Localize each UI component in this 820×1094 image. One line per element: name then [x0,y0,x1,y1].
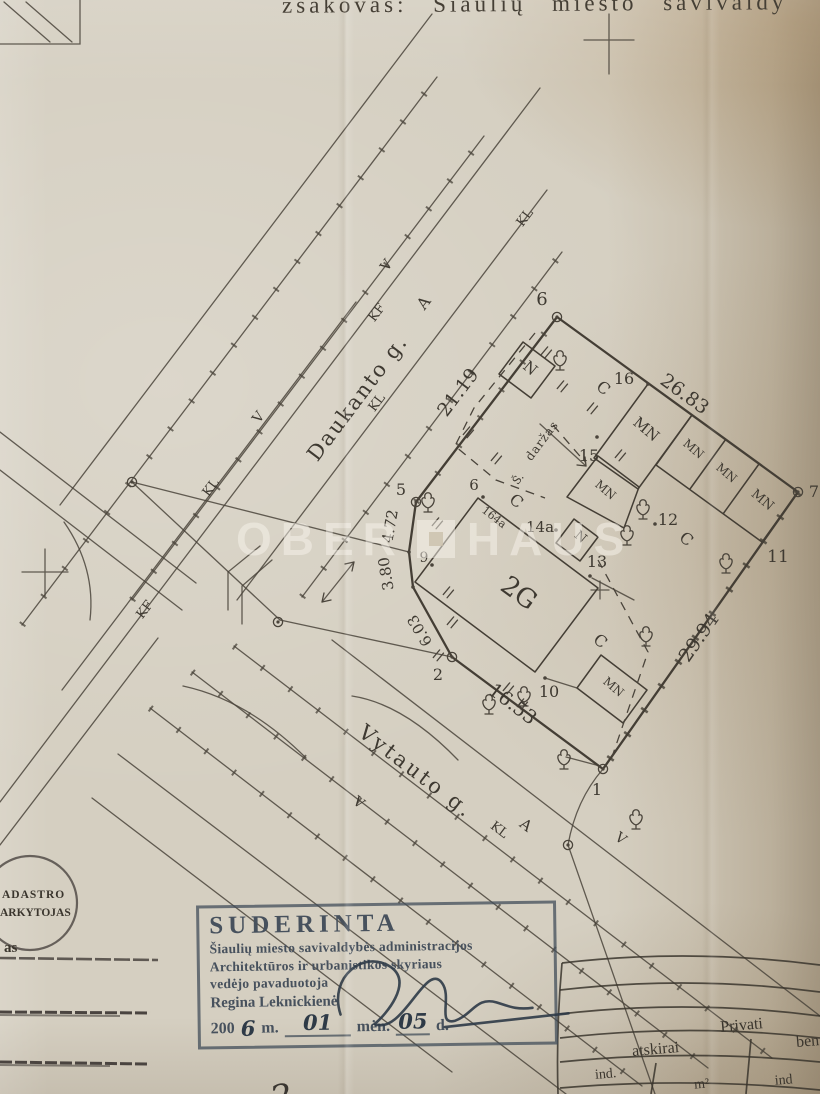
point-label-6b: 6 [469,476,479,494]
area-label-c: C [590,630,612,652]
building-label-mn: MN [630,413,663,445]
point-label-7: 7 [809,482,819,501]
well-label: Š. [509,470,527,487]
watermark-ober: OBER [236,512,405,566]
table-header-atskirai: atskirai [631,1039,680,1060]
util-label-kl: KL [200,476,223,500]
stamp-date-line: 2006 m. 01 mėn. 05 d. [211,1011,545,1038]
oberhaus-logo-icon [417,520,455,558]
point-label-2: 2 [433,665,443,684]
building-label-mn: MN [713,460,739,485]
approval-stamp: SUDERINTA Šiaulių miesto savivaldybės ad… [196,900,558,1049]
point-label-5: 5 [396,480,406,499]
month-handwritten: 01 [303,1009,333,1034]
men-label: mėn. [357,1017,391,1035]
handwritten-note: 2 [267,1076,295,1094]
util-label-kl: KL [487,819,511,842]
point-label-12: 12 [658,510,678,529]
trees-group [422,351,732,829]
point-label-15: 15 [579,446,599,465]
stamp-line3: vedėjo pavaduotoja [210,971,544,993]
daukanto-street-lines [0,14,562,845]
table-header-ind-left: ind. [594,1066,617,1083]
watermark-haus: HAUS [467,512,633,566]
bottom-ruled-lines [0,1012,150,1066]
area-label-c: C [506,490,528,512]
day-handwritten: 05 [398,1008,428,1033]
round-stamp-line1: ADASTRO [2,889,65,901]
table-header-bendrai: ben [795,1032,820,1051]
table-header-m2: m² [694,1076,710,1092]
watermark: OBER HAUS [236,512,633,566]
corner-drawing-fragment [0,0,80,44]
util-label-v: V [349,793,368,813]
util-label-a: A [515,814,535,836]
survey-table: Privati atskirai ben ind. m² ind [558,956,820,1094]
round-stamp-line2: ARKYTOJAS [0,907,71,919]
distance-29-94: 29.94 [674,609,723,666]
building-label-mn: MN [592,477,618,502]
street-name-vytauto: Vytauto g. [353,719,478,823]
building-label-mn: MN [748,487,777,514]
point-label-6: 6 [536,289,547,310]
d-label: d. [436,1017,449,1035]
distance-21-19: 21.19 [433,364,483,421]
point-label-11: 11 [767,547,789,567]
stamp-signer-name: Regina Leknickienė [210,990,544,1012]
building-label-mn: MN [600,674,626,699]
building-label-2g: 2G [495,570,543,616]
area-label-c: C [676,528,698,550]
round-stamp: ADASTRO ARKYTOJAS as [0,856,158,960]
garden-label: daržas [522,418,561,463]
area-label-c: C [593,377,615,399]
util-label-kf: KF [366,301,389,325]
building-label-mn: MN [680,436,706,461]
m-label: m. [261,1019,279,1037]
year-prefix: 200 [211,1020,235,1038]
round-stamp-note: as [4,940,18,956]
point-label-1: 1 [592,780,602,799]
year-handwritten: 6 [241,1021,256,1038]
scanned-cadastral-plan-page: Daukanto g. Vytauto g. KL KL KL KF KF V … [0,0,820,1094]
table-header-ind-right: ind [774,1072,793,1089]
util-label-kf: KF [134,598,157,622]
util-label-a: A [412,292,435,314]
util-label-kl: KL [514,206,537,230]
util-label-v: V [611,829,630,849]
point-label-10: 10 [539,682,559,701]
point-label-16: 16 [614,369,634,388]
